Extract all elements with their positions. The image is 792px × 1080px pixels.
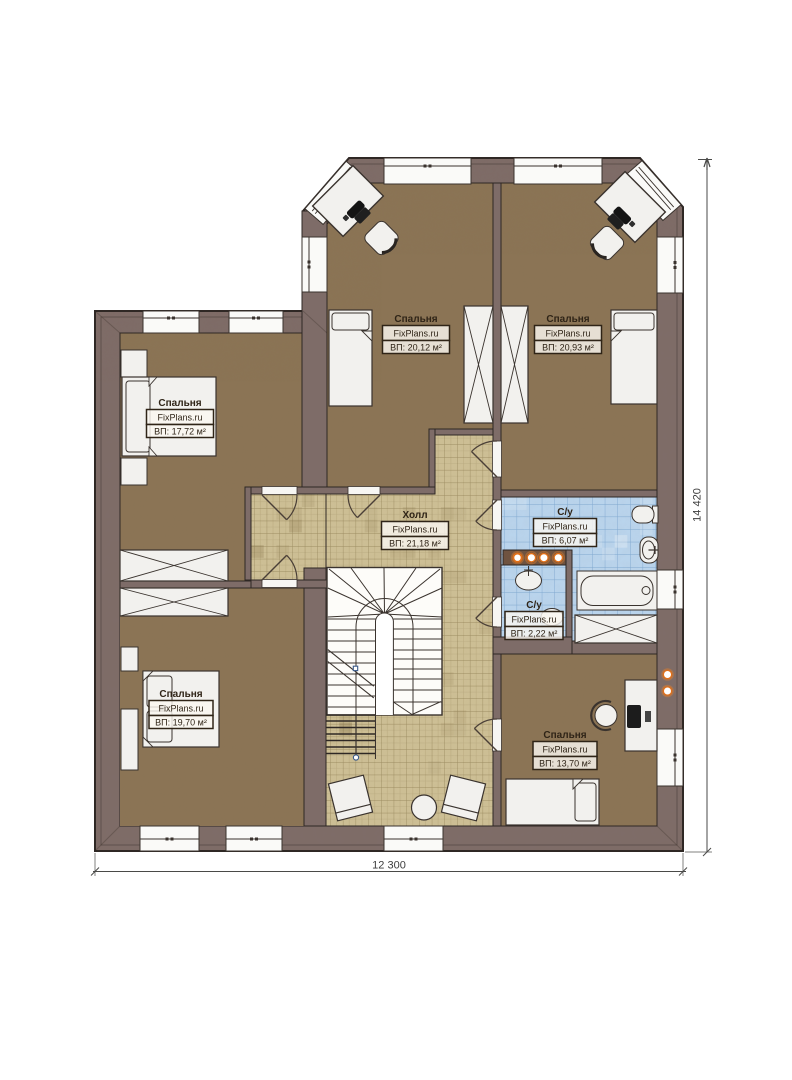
- svg-text:FixPlans.ru: FixPlans.ru: [158, 704, 203, 714]
- svg-text:Спальня: Спальня: [543, 730, 586, 741]
- svg-text:Спальня: Спальня: [159, 689, 202, 700]
- svg-text:FixPlans.ru: FixPlans.ru: [393, 329, 438, 339]
- svg-text:FixPlans.ru: FixPlans.ru: [511, 615, 556, 625]
- svg-text:FixPlans.ru: FixPlans.ru: [542, 522, 587, 532]
- svg-text:12 300: 12 300: [372, 860, 406, 872]
- svg-text:Спальня: Спальня: [394, 314, 437, 325]
- svg-text:ВП: 2,22 м²: ВП: 2,22 м²: [511, 629, 558, 639]
- svg-text:Спальня: Спальня: [546, 314, 589, 325]
- svg-text:ВП: 19,70 м²: ВП: 19,70 м²: [155, 718, 207, 728]
- svg-text:Холл: Холл: [402, 510, 427, 521]
- svg-text:Спальня: Спальня: [158, 398, 201, 409]
- svg-text:С/у: С/у: [526, 600, 542, 611]
- svg-text:ВП: 21,18 м²: ВП: 21,18 м²: [389, 539, 441, 549]
- svg-text:FixPlans.ru: FixPlans.ru: [392, 525, 437, 535]
- svg-text:С/у: С/у: [557, 507, 573, 518]
- svg-text:FixPlans.ru: FixPlans.ru: [545, 329, 590, 339]
- svg-text:ВП: 20,12 м²: ВП: 20,12 м²: [390, 343, 442, 353]
- svg-text:FixPlans.ru: FixPlans.ru: [542, 745, 587, 755]
- svg-text:ВП: 17,72 м²: ВП: 17,72 м²: [154, 427, 206, 437]
- svg-text:ВП: 13,70 м²: ВП: 13,70 м²: [539, 759, 591, 769]
- svg-text:ВП: 6,07 м²: ВП: 6,07 м²: [542, 536, 589, 546]
- svg-text:ВП: 20,93 м²: ВП: 20,93 м²: [542, 343, 594, 353]
- svg-text:14 420: 14 420: [692, 488, 704, 522]
- svg-text:FixPlans.ru: FixPlans.ru: [157, 413, 202, 423]
